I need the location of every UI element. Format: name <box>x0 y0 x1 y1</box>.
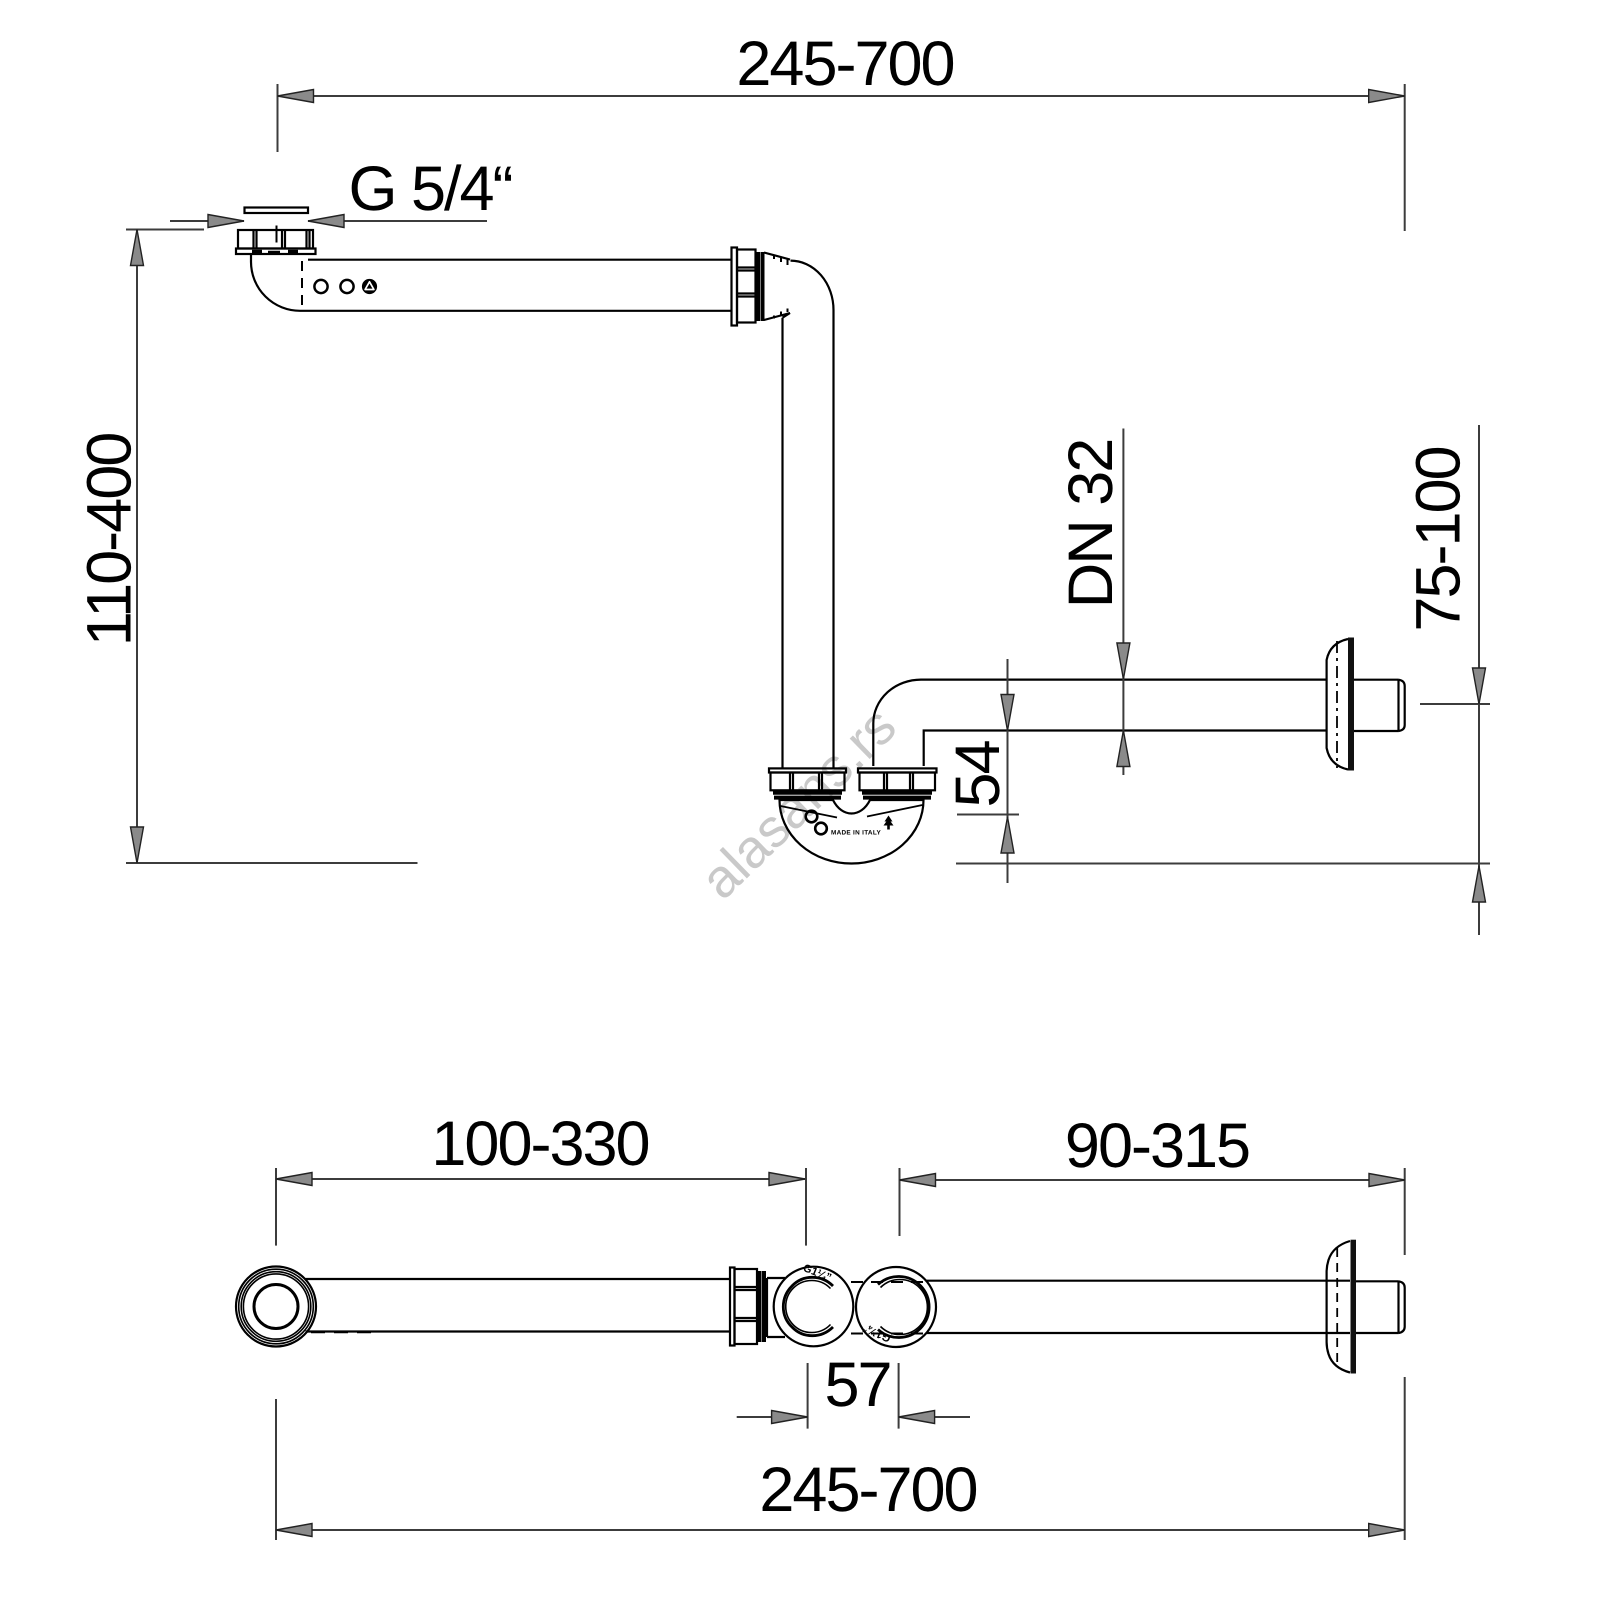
svg-text:54: 54 <box>943 741 1013 808</box>
svg-text:57: 57 <box>824 1350 890 1420</box>
svg-text:90-315: 90-315 <box>1065 1111 1249 1181</box>
svg-text:110-400: 110-400 <box>75 434 145 647</box>
svg-text:245-700: 245-700 <box>759 1455 976 1525</box>
svg-text:DN 32: DN 32 <box>1056 440 1126 609</box>
svg-text:MADE IN ITALY: MADE IN ITALY <box>831 830 881 837</box>
svg-text:245-700: 245-700 <box>736 29 953 99</box>
svg-text:G 5/4“: G 5/4“ <box>348 154 511 224</box>
svg-text:100-330: 100-330 <box>431 1109 648 1179</box>
svg-text:75-100: 75-100 <box>1404 447 1474 631</box>
